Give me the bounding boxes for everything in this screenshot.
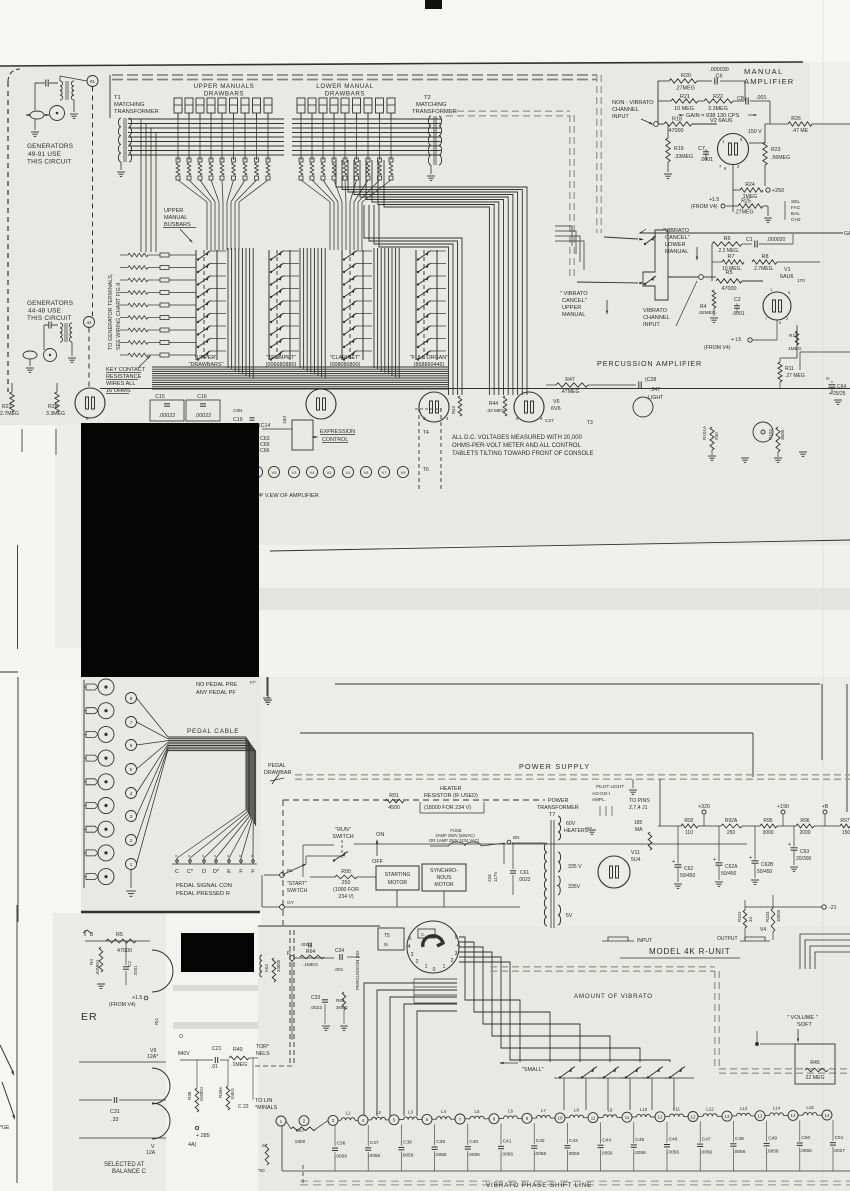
svg-text:.0056: .0056 <box>368 1153 380 1159</box>
svg-text:TRANSFORMER: TRANSFORMER <box>114 109 159 115</box>
svg-text:MOTOR: MOTOR <box>434 882 453 888</box>
svg-text:+ L5: + L5 <box>731 337 741 343</box>
svg-text:C19: C19 <box>233 417 243 423</box>
svg-text:.0001: .0001 <box>732 311 745 317</box>
svg-text:R4: R4 <box>89 959 94 965</box>
svg-text:1MEG: 1MEG <box>788 346 802 352</box>
svg-text:C31: C31 <box>110 1109 120 1115</box>
svg-text:D: D <box>202 869 206 875</box>
svg-text:.0001: .0001 <box>300 942 312 948</box>
svg-text:12: 12 <box>691 1114 696 1119</box>
svg-text:T7: T7 <box>549 812 555 818</box>
svg-text:L6: L6 <box>508 1109 513 1114</box>
svg-text:x: x <box>214 853 216 858</box>
svg-text:CHANNEL: CHANNEL <box>643 315 670 321</box>
svg-text:C62B: C62B <box>761 862 774 868</box>
svg-text:R92A: R92A <box>725 818 738 824</box>
svg-text:10 MEG.: 10 MEG. <box>722 266 742 272</box>
svg-text:.00022: .00022 <box>159 413 176 419</box>
svg-text:.0056: .0056 <box>767 1149 779 1155</box>
svg-text:2,7,4 J1: 2,7,4 J1 <box>629 805 648 811</box>
svg-text:.01: .01 <box>211 1064 218 1070</box>
svg-text:47000: 47000 <box>117 948 132 954</box>
svg-text:2.7MEG.: 2.7MEG. <box>754 266 774 272</box>
svg-text:AMPL.: AMPL. <box>592 797 606 802</box>
svg-text:.0022: .0022 <box>518 877 531 883</box>
svg-text:CONTROL: CONTROL <box>322 437 348 443</box>
svg-text:335V: 335V <box>568 884 581 890</box>
svg-text:x: x <box>188 853 190 858</box>
svg-text:MATCHING: MATCHING <box>114 102 145 108</box>
svg-text:5V: 5V <box>566 913 573 919</box>
svg-text:3.3MEG: 3.3MEG <box>708 106 728 112</box>
svg-text:C36: C36 <box>337 1140 346 1146</box>
svg-text:R23: R23 <box>771 147 781 153</box>
svg-text:250: 250 <box>342 880 351 886</box>
svg-text:SEL: SEL <box>791 199 800 205</box>
svg-text:(18000 FOR 234 V): (18000 FOR 234 V) <box>424 805 471 811</box>
svg-text:SYNCHRO-: SYNCHRO- <box>430 868 458 874</box>
svg-text:MANUAL: MANUAL <box>665 249 688 255</box>
svg-text:R40: R40 <box>233 1047 243 1053</box>
svg-text:(C14: (C14 <box>259 423 270 429</box>
svg-text:C48: C48 <box>735 1136 744 1142</box>
svg-text:MATCHING: MATCHING <box>416 102 447 108</box>
svg-text:O: O <box>179 1034 183 1040</box>
svg-text:.33: .33 <box>111 1117 119 1123</box>
svg-text:+: + <box>749 855 752 861</box>
svg-text:"START": "START" <box>287 881 307 887</box>
svg-text:C62: C62 <box>684 866 693 872</box>
svg-text:PERCUSSION AMPLIFIER: PERCUSSION AMPLIFIER <box>597 359 702 368</box>
svg-text:ANY PEDAL PF: ANY PEDAL PF <box>196 690 236 696</box>
svg-text:TO LIN: TO LIN <box>255 1098 272 1104</box>
svg-text:*00: *00 <box>258 1168 265 1173</box>
svg-text:170: 170 <box>797 278 805 283</box>
svg-text:+250: +250 <box>772 188 784 194</box>
svg-text:2000: 2000 <box>799 830 810 836</box>
svg-text:.56MEG: .56MEG <box>771 155 790 161</box>
svg-text:110: 110 <box>685 830 693 836</box>
svg-text:STARTING: STARTING <box>385 872 411 878</box>
svg-text:3: 3 <box>411 952 414 958</box>
svg-text:"CLARINET": "CLARINET" <box>330 355 361 361</box>
svg-text:.0056: .0056 <box>800 1148 812 1154</box>
svg-text:.0001: .0001 <box>700 157 713 163</box>
svg-text:PERCUSSION SIG: PERCUSSION SIG <box>355 950 360 990</box>
svg-text:THIS CIRCUIT: THIS CIRCUIT <box>27 159 72 166</box>
svg-text:D*: D* <box>213 869 220 875</box>
svg-text:+: + <box>829 391 832 397</box>
svg-text:#30: #30 <box>714 432 719 440</box>
svg-text:12: 12 <box>658 1115 663 1120</box>
svg-text:(C28: (C28 <box>645 377 656 383</box>
svg-text:C51: C51 <box>835 1135 844 1141</box>
svg-text:MOTOR: MOTOR <box>388 880 407 886</box>
svg-text:*GE: *GE <box>0 1125 10 1131</box>
svg-text:22 MEG: 22 MEG <box>805 1075 824 1081</box>
svg-text:.27MEG: .27MEG <box>734 210 753 216</box>
svg-text:OUTPUT: OUTPUT <box>717 936 738 942</box>
svg-text:KEY CONTACT: KEY CONTACT <box>106 367 146 373</box>
svg-text:10: 10 <box>558 1116 563 1121</box>
svg-text:R47: R47 <box>565 377 575 383</box>
svg-text:R22: R22 <box>713 94 723 100</box>
svg-text:SELECTED AT: SELECTED AT <box>104 1162 145 1168</box>
svg-text:GENERATORS: GENERATORS <box>27 143 73 150</box>
svg-text:E: E <box>227 869 231 875</box>
svg-text:BN: BN <box>513 835 519 840</box>
svg-text:VIBRATO PHASE SHIFT LINE: VIBRATO PHASE SHIFT LINE <box>486 1182 592 1189</box>
svg-text:R24: R24 <box>745 182 755 188</box>
svg-text:UPPER: UPPER <box>562 305 581 311</box>
svg-text:BALANCE C: BALANCE C <box>112 1169 147 1175</box>
svg-text:T5: T5 <box>384 933 390 939</box>
svg-text:R90: R90 <box>341 869 351 875</box>
svg-text:R19: R19 <box>674 146 684 152</box>
svg-text:AO-GO-I: AO-GO-I <box>592 791 610 796</box>
svg-text:5U4: 5U4 <box>631 857 641 863</box>
svg-text:C47: C47 <box>702 1136 711 1142</box>
svg-text:14: 14 <box>791 1113 796 1118</box>
svg-text:V4: V4 <box>310 470 316 475</box>
svg-text:x: x <box>175 853 177 858</box>
svg-text:117V: 117V <box>493 871 498 882</box>
svg-text:25/25: 25/25 <box>833 391 846 397</box>
svg-text:20/300: 20/300 <box>796 856 812 862</box>
svg-text:L9: L9 <box>608 1107 613 1112</box>
svg-text:F/*: F/* <box>250 680 256 685</box>
svg-text:L4: L4 <box>441 1109 446 1114</box>
svg-text:+1.5: +1.5 <box>132 995 142 1001</box>
svg-text:O: O <box>826 376 830 381</box>
svg-text:C15: C15 <box>155 394 165 400</box>
svg-text:TRANSFORMER: TRANSFORMER <box>537 805 579 811</box>
svg-text:RESISTOR (IF USED): RESISTOR (IF USED) <box>424 793 478 799</box>
svg-text:C66: C66 <box>260 448 270 454</box>
svg-text:LOWER MANUAL: LOWER MANUAL <box>316 83 373 90</box>
svg-text:x: x <box>239 853 241 858</box>
svg-text:VIBRATO: VIBRATO <box>643 308 668 314</box>
svg-text:C62A: C62A <box>725 864 738 870</box>
svg-text:.0056: .0056 <box>534 1151 546 1157</box>
svg-text:CANCEL": CANCEL" <box>665 235 690 241</box>
svg-text:L3: L3 <box>408 1110 413 1115</box>
svg-text:.001: .001 <box>756 95 767 101</box>
svg-text:R8: R8 <box>762 254 769 260</box>
svg-text:C: C <box>175 869 179 875</box>
svg-text:R96: R96 <box>800 818 809 824</box>
svg-text:.0056: .0056 <box>468 1152 480 1158</box>
svg-text:R44: R44 <box>489 401 498 407</box>
svg-text:L13: L13 <box>740 1106 748 1111</box>
svg-text:NO PEDAL PRE: NO PEDAL PRE <box>196 682 237 688</box>
svg-text:44: 44 <box>86 320 92 325</box>
svg-text:TOR*: TOR* <box>256 1044 269 1050</box>
svg-text:C45: C45 <box>635 1137 644 1143</box>
svg-text:V2: V2 <box>327 470 333 475</box>
svg-text:44-48 USE: 44-48 USE <box>28 308 61 315</box>
svg-text:2: 2 <box>451 958 454 964</box>
svg-text:F: F <box>239 869 243 875</box>
svg-text:SOFT: SOFT <box>797 1022 812 1028</box>
svg-text:(FROM V4): (FROM V4) <box>691 204 718 210</box>
svg-text:R26: R26 <box>791 116 801 122</box>
svg-text:3MEG: 3MEG <box>336 1005 348 1010</box>
svg-text:C63: C63 <box>800 849 809 855</box>
svg-text:L11: L11 <box>673 1107 681 1112</box>
svg-text:x: x <box>227 853 229 858</box>
svg-text:R64: R64 <box>306 949 315 955</box>
svg-text:.0056: .0056 <box>634 1150 646 1156</box>
svg-text:R10: R10 <box>789 333 798 339</box>
svg-text:GY: GY <box>287 900 295 906</box>
svg-text:R65: R65 <box>336 998 345 1003</box>
svg-text:47000: 47000 <box>669 128 684 134</box>
svg-text:POWER SUPPLY: POWER SUPPLY <box>519 762 590 771</box>
svg-text:V7: V7 <box>382 470 388 475</box>
svg-text:.0056: .0056 <box>435 1152 447 1158</box>
svg-text:MA: MA <box>635 827 643 833</box>
svg-text:L12: L12 <box>706 1106 714 1111</box>
svg-text:3600: 3600 <box>780 429 785 440</box>
svg-text:+ 285: + 285 <box>196 1133 210 1139</box>
svg-text:R4: R4 <box>700 304 707 310</box>
svg-text:ER: ER <box>81 1011 98 1023</box>
svg-text:C50: C50 <box>801 1135 810 1141</box>
svg-text:"SMALL": "SMALL" <box>522 1067 544 1073</box>
svg-text:V5: V5 <box>272 470 278 475</box>
svg-text:HEATER: HEATER <box>440 786 462 792</box>
svg-text:T3: T3 <box>587 420 593 426</box>
svg-text:PEDAL SIGNAL CON: PEDAL SIGNAL CON <box>176 883 232 889</box>
svg-text:C.: C. <box>421 932 425 937</box>
svg-text:R39A: R39A <box>218 1086 223 1098</box>
svg-text:V2 6AU6: V2 6AU6 <box>710 118 732 124</box>
svg-text:R7: R7 <box>728 254 735 260</box>
svg-text:POWER: POWER <box>548 798 568 804</box>
svg-text:11: 11 <box>591 1115 596 1120</box>
svg-text:6V6: 6V6 <box>551 406 561 412</box>
svg-text:(008080800): (008080800) <box>330 362 361 368</box>
svg-text:840V: 840V <box>178 1051 190 1057</box>
svg-text:DRAWBARS: DRAWBARS <box>325 91 365 98</box>
svg-text:V8: V8 <box>364 470 370 475</box>
svg-text:PEDAL CABLE: PEDAL CABLE <box>187 728 239 735</box>
svg-text:DRAWBAR: DRAWBAR <box>264 770 291 776</box>
svg-text:13: 13 <box>758 1114 763 1119</box>
svg-text:1MEG: 1MEG <box>230 1088 235 1100</box>
svg-text:C*: C* <box>187 869 194 875</box>
svg-text:ON: ON <box>376 832 384 838</box>
svg-text:C 22: C 22 <box>238 1104 249 1110</box>
svg-text:R97: R97 <box>840 818 849 824</box>
svg-text:L2: L2 <box>376 1110 381 1115</box>
svg-text:V1: V1 <box>346 470 352 475</box>
svg-text:PILOT LIGHT: PILOT LIGHT <box>596 784 624 789</box>
svg-text:CH2: CH2 <box>791 217 801 223</box>
svg-text:+: + <box>713 857 716 863</box>
svg-text:10000: 10000 <box>776 909 781 922</box>
svg-text:ALL D.C. VOLTAGES MEASURED W: ALL D.C. VOLTAGES MEASURED WITH 20,000 <box>452 435 583 441</box>
svg-text:91: 91 <box>90 79 96 84</box>
svg-text:R101A: R101A <box>702 425 707 440</box>
svg-text:NON - VIBRATO: NON - VIBRATO <box>612 100 654 106</box>
svg-text:1800: 1800 <box>295 1139 306 1145</box>
svg-text:AMPLIFIER: AMPLIFIER <box>744 77 794 86</box>
svg-text:234 V): 234 V) <box>338 894 354 900</box>
svg-text:L7: L7 <box>541 1108 546 1113</box>
svg-text:RESISTANCE: RESISTANCE <box>106 374 142 380</box>
svg-text:TO PINS: TO PINS <box>629 798 650 804</box>
svg-text:C64: C64 <box>837 384 846 390</box>
svg-text:R43: R43 <box>451 405 456 414</box>
svg-text:V9: V9 <box>401 470 407 475</box>
svg-text:.0056: .0056 <box>401 1153 413 1159</box>
svg-text:2: 2 <box>416 959 419 965</box>
svg-text:3: 3 <box>455 951 458 957</box>
svg-text:BAL: BAL <box>791 211 800 217</box>
svg-text:C39: C39 <box>436 1139 445 1145</box>
svg-text:.27MEG: .27MEG <box>675 86 695 92</box>
svg-text:R95: R95 <box>763 818 772 824</box>
svg-text:.001: .001 <box>334 967 344 973</box>
svg-text:5: 5 <box>455 935 458 941</box>
svg-text:C8N: C8N <box>233 408 242 413</box>
svg-text:"TRUMPET": "TRUMPET" <box>266 355 296 361</box>
svg-text:V11: V11 <box>631 850 640 856</box>
svg-text:160: 160 <box>282 416 288 424</box>
svg-text:R101: R101 <box>737 911 742 922</box>
svg-text:"FULL ORGAN": "FULL ORGAN" <box>410 355 448 361</box>
svg-text:.33 MEG: .33 MEG <box>486 408 505 414</box>
svg-text:INPUT: INPUT <box>612 114 629 120</box>
svg-text:12A*: 12A* <box>147 1054 158 1060</box>
svg-text:.33MEG: .33MEG <box>674 154 693 160</box>
svg-text:C37: C37 <box>370 1140 379 1146</box>
svg-text:HEATERS: HEATERS <box>564 828 589 834</box>
svg-text:CANCEL": CANCEL" <box>562 298 587 304</box>
svg-text:33: 33 <box>748 917 753 922</box>
svg-text:4500: 4500 <box>388 805 400 811</box>
svg-text:+190: +190 <box>777 804 789 810</box>
svg-text:INPUT: INPUT <box>643 322 660 328</box>
svg-text:R38: R38 <box>187 1091 192 1100</box>
svg-text:4: 4 <box>408 944 411 950</box>
svg-text:2.7MEG: 2.7MEG <box>0 411 19 417</box>
svg-text:335 V: 335 V <box>568 864 582 870</box>
svg-text:SWITCH: SWITCH <box>287 888 308 894</box>
svg-text:SWITCH: SWITCH <box>332 834 353 840</box>
svg-text:47000: 47000 <box>722 286 737 292</box>
svg-text:R92: R92 <box>684 818 693 824</box>
svg-text:(FROM V4): (FROM V4) <box>704 345 731 351</box>
svg-text:49-91 USE: 49-91 USE <box>28 151 61 158</box>
svg-text:T4: T4 <box>423 430 429 436</box>
svg-text:INPUT: INPUT <box>637 938 652 944</box>
svg-text:R11: R11 <box>785 366 794 372</box>
svg-text:3.3MEG: 3.3MEG <box>46 411 65 417</box>
svg-text:NELS: NELS <box>256 1051 270 1057</box>
svg-text:LOWER: LOWER <box>665 242 686 248</box>
svg-text:C43: C43 <box>569 1138 578 1144</box>
svg-text:PEDAL PRESSED R: PEDAL PRESSED R <box>176 891 230 897</box>
svg-text:L5: L5 <box>475 1109 480 1114</box>
svg-text:50/450: 50/450 <box>757 869 773 875</box>
svg-text:OHMS-PER-VOLT METER AND ALL C: OHMS-PER-VOLT METER AND ALL CONTROL <box>452 443 582 449</box>
svg-text:10 MEG: 10 MEG <box>674 106 694 112</box>
svg-text:60V: 60V <box>566 821 576 827</box>
svg-text:R25: R25 <box>741 199 751 205</box>
svg-text:.0001: .0001 <box>133 965 138 976</box>
svg-text:x: x <box>202 853 204 858</box>
svg-text:.82MEG: .82MEG <box>95 960 100 975</box>
svg-text:C33: C33 <box>311 995 320 1001</box>
svg-text:.00022: .00022 <box>195 413 212 419</box>
svg-text:1: 1 <box>425 964 428 970</box>
svg-text:R18: R18 <box>672 117 682 123</box>
svg-text:6AU6: 6AU6 <box>780 274 794 280</box>
svg-text:R45: R45 <box>810 1060 820 1066</box>
svg-text:11: 11 <box>625 1115 630 1120</box>
svg-text:V3: V3 <box>292 470 298 475</box>
svg-text:NOUS: NOUS <box>437 875 453 881</box>
svg-text:SEE WIRING CHART FIG.9: SEE WIRING CHART FIG.9 <box>116 283 122 350</box>
svg-text:+: + <box>788 842 791 848</box>
svg-text:FAC: FAC <box>791 205 801 211</box>
svg-text:K63: K63 <box>264 964 269 972</box>
svg-text:R21: R21 <box>680 94 690 100</box>
svg-text:33000: 33000 <box>276 959 281 972</box>
svg-text:"UPPER": "UPPER" <box>195 355 217 361</box>
svg-text:AMOUNT OF VIBRATO: AMOUNT OF VIBRATO <box>574 993 653 1000</box>
svg-text:150: 150 <box>842 830 850 836</box>
svg-text:.55MEG: .55MEG <box>199 1087 204 1102</box>
svg-text:.47MEG: .47MEG <box>560 389 579 395</box>
svg-text:13: 13 <box>725 1114 730 1119</box>
svg-text:C2: C2 <box>734 297 741 303</box>
svg-text:L15: L15 <box>806 1105 814 1110</box>
svg-text:-21: -21 <box>829 905 837 911</box>
svg-text:L14: L14 <box>773 1106 781 1111</box>
svg-text:V4: V4 <box>760 927 766 933</box>
svg-text:.0056: .0056 <box>667 1150 679 1156</box>
svg-text:C16: C16 <box>197 394 207 400</box>
svg-text:GENERATORS: GENERATORS <box>27 300 73 307</box>
svg-text:.0056: .0056 <box>567 1151 579 1157</box>
svg-text:R28: R28 <box>48 404 58 410</box>
svg-text:" VIBRATO: " VIBRATO <box>560 291 588 297</box>
svg-text:"RUN": "RUN" <box>335 827 351 833</box>
svg-text:1: 1 <box>443 964 446 970</box>
svg-text:C1: C1 <box>746 237 753 243</box>
svg-text:.47 ME: .47 ME <box>792 128 809 134</box>
svg-text:WIRES ALL: WIRES ALL <box>106 381 136 387</box>
svg-text:x: x <box>251 853 253 858</box>
svg-text:185: 185 <box>634 820 643 826</box>
svg-text:C6: C6 <box>716 74 723 80</box>
svg-text:TRANSFORMER: TRANSFORMER <box>412 109 457 115</box>
svg-text:.0022: .0022 <box>310 1005 322 1011</box>
svg-text:(868860446): (868860446) <box>414 362 445 368</box>
svg-text:0: 0 <box>433 967 436 973</box>
svg-text:.1MEG: .1MEG <box>303 962 318 968</box>
svg-text:R91: R91 <box>389 793 399 799</box>
svg-text:L10: L10 <box>640 1107 648 1112</box>
svg-text:MANUAL: MANUAL <box>562 312 585 318</box>
svg-text:(FROM V4): (FROM V4) <box>109 1002 136 1008</box>
svg-text:4A): 4A) <box>188 1142 197 1148</box>
